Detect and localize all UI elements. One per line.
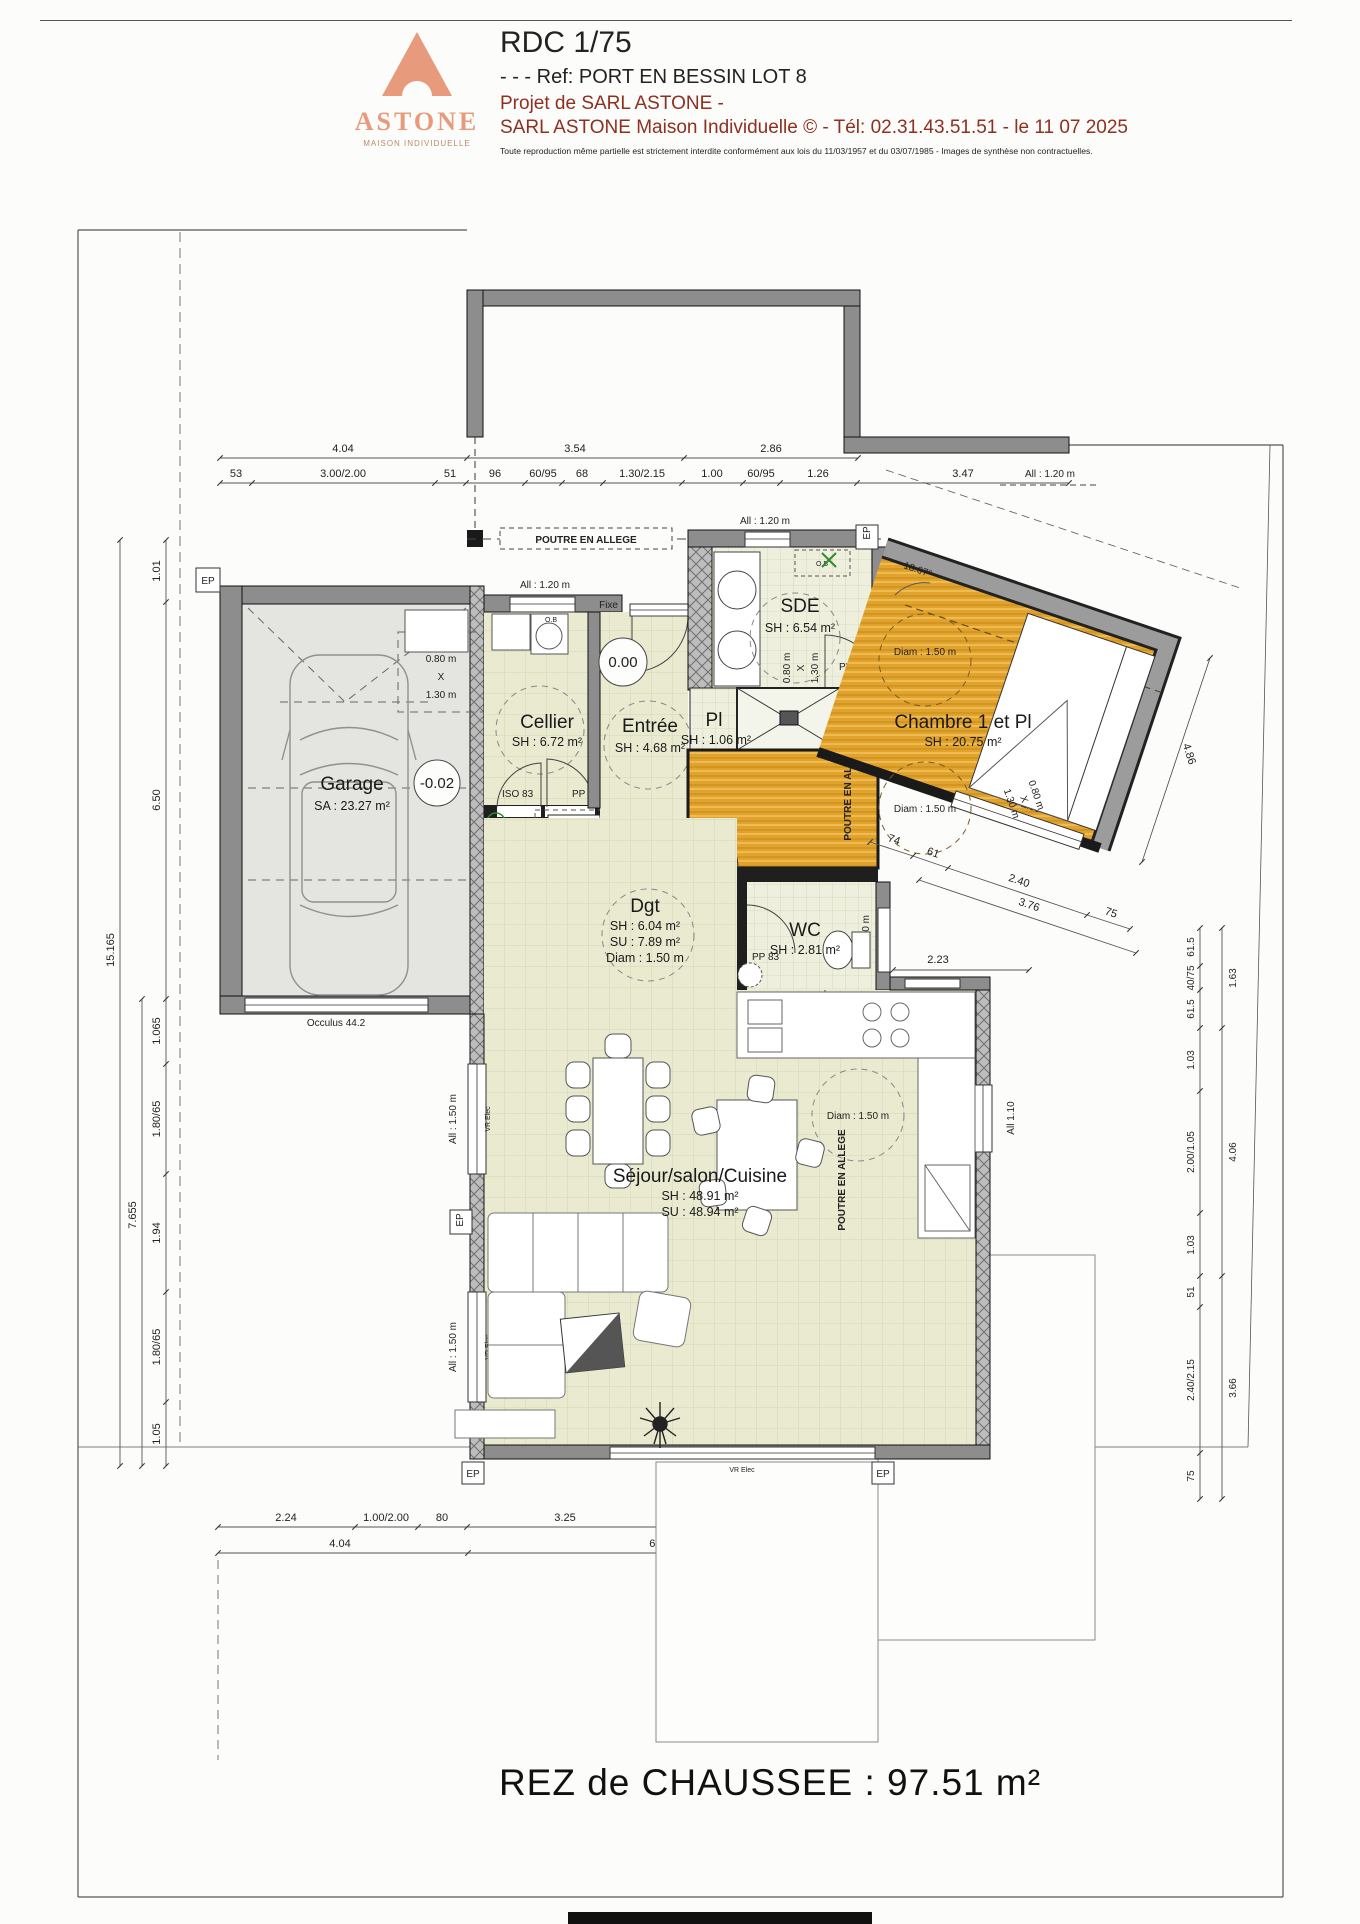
dim-label: 61 (925, 846, 940, 861)
neighbor-walls (467, 290, 1069, 547)
coffee-table (560, 1313, 624, 1373)
dim-label: 74 (886, 833, 901, 848)
room-area: SU : 48.94 m² (661, 1205, 738, 1219)
room-name: Dgt (630, 896, 660, 917)
dim-label: 3.66 (1228, 1378, 1239, 1398)
ep-downspout-label: EP (876, 1469, 890, 1480)
window-size-label: 0.80 m (782, 653, 793, 684)
dim-label: 4.06 (1228, 1142, 1239, 1162)
room-area: SA : 23.27 m² (314, 799, 390, 813)
beam-label: POUTRE EN ALLEGE (837, 1129, 848, 1231)
window-sill-label: All : 1.50 m (448, 1322, 459, 1372)
window-size-label: 0.80 m (426, 654, 457, 665)
dim-label: 75 (1186, 1470, 1197, 1482)
dim-label: 68 (576, 468, 588, 480)
dim-label: 4.86 (1180, 742, 1198, 766)
dim-label: 7.655 (127, 1201, 139, 1229)
room-area: SH : 6.04 m² (610, 919, 680, 933)
room-area: SU : 7.89 m² (610, 935, 680, 949)
dim-label: 3.47 (952, 468, 973, 480)
window-size-label: X (438, 672, 445, 683)
dim-label: 1.30/2.15 (619, 468, 665, 480)
armchair (632, 1290, 692, 1348)
dim-label: 1.00/2.00 (363, 1512, 409, 1524)
ep-downspout-label: EP (466, 1469, 480, 1480)
floor-plan-drawing: 4.04 3.54 2.86 53 3.00/2.00 51 96 60/95 … (0, 0, 1360, 1924)
dim-label: 6.50 (151, 789, 163, 810)
tv-console (455, 1410, 555, 1438)
ob-window-label: O.B (545, 617, 557, 624)
fixed-window-label: Fixe (599, 600, 618, 611)
dim-label: 2.40/2.15 (1186, 1359, 1197, 1401)
dim-label: 53 (230, 468, 242, 480)
ep-downspout-label: EP (201, 576, 215, 587)
dim-label: 4.04 (332, 443, 353, 455)
dim-label: 2.24 (275, 1512, 296, 1524)
dim-label: 1.03 (1186, 1050, 1197, 1070)
dim-label: 1.03 (1186, 1235, 1197, 1255)
room-area: SH : 1.06 m² (681, 733, 751, 747)
dim-label: 1.94 (151, 1222, 163, 1243)
room-area: SH : 4.68 m² (615, 741, 685, 755)
dim-label: 60/95 (529, 468, 557, 480)
dim-label: 4.04 (329, 1538, 350, 1550)
dim-label: 1.80/65 (151, 1329, 163, 1366)
window-sill-label: All 1.10 (1006, 1101, 1017, 1135)
turning-circle-label: Diam : 1.50 m (894, 647, 956, 658)
beam-label: POUTRE EN ALLEGE (535, 535, 637, 546)
window-sill-label: All : 1.50 m (448, 1094, 459, 1144)
dim-label: 40/75 (1186, 965, 1197, 990)
dim-label: 3.76 (1017, 896, 1041, 914)
window-sill-label: All : 1.20 m (740, 516, 790, 527)
room-name: Garage (320, 774, 383, 795)
dim-label: 15.165 (105, 933, 117, 967)
dim-label: 96 (489, 468, 501, 480)
scan-artifact (568, 1912, 872, 1924)
room-name: SDE (780, 596, 819, 617)
dim-label: 1.63 (1228, 968, 1239, 988)
plan-sheet: ASTONE MAISON INDIVIDUELLE RDC 1/75 - - … (0, 0, 1360, 1924)
dim-label: 2.40 (1007, 872, 1031, 890)
dimension-chain-right: 61.5 40/75 61.5 1.03 2.00/1.05 1.03 51 2… (1142, 658, 1239, 1499)
garage-door-label: Occulus 44.2 (307, 1018, 366, 1029)
room-wc: All : 1.40 m PP 83 WC SH : 2.81 m² 2.23 (737, 868, 1029, 990)
dim-label: 1.00 (701, 468, 722, 480)
dim-label: 3.00/2.00 (320, 468, 366, 480)
ep-downspout-label: EP (862, 526, 873, 540)
dim-label: 61.5 (1186, 999, 1197, 1019)
window-size-label: X (796, 664, 807, 671)
floor-total-area-title: REZ de CHAUSSEE : 97.51 m² (440, 1762, 1100, 1804)
room-name: Séjour/salon/Cuisine (613, 1166, 787, 1187)
room-area: SH : 48.91 m² (661, 1189, 738, 1203)
room-name: Entrée (622, 716, 678, 737)
turning-circle-label: Diam : 1.50 m (894, 804, 956, 815)
dim-label: 1.065 (151, 1017, 163, 1045)
room-dgt: Dgt SH : 6.04 m² SU : 7.89 m² Diam : 1.5… (484, 818, 737, 990)
shutter-label: VR Elec (485, 1106, 492, 1132)
dim-label: 51 (1186, 1286, 1197, 1298)
ep-downspout-label: EP (455, 1213, 466, 1227)
room-area: SH : 6.54 m² (765, 621, 835, 635)
window-sill-label: All : 1.20 m (520, 580, 570, 591)
room-pl-and-shower: Pl SH : 1.06 m² (681, 688, 840, 750)
room-entree: Fixe 0.00 Entrée SH : 4.68 m² (588, 600, 692, 818)
dim-label: 1.26 (807, 468, 828, 480)
window-size-label: 1.30 m (426, 690, 457, 701)
room-area: SH : 2.81 m² (770, 943, 840, 957)
dim-label: 3.54 (564, 443, 585, 455)
dim-label: 2.86 (760, 443, 781, 455)
room-area: SH : 6.72 m² (512, 735, 582, 749)
shutter-label: VR Elec (729, 1467, 755, 1474)
room-area: Diam : 1.50 m (606, 951, 684, 965)
dim-label: 2.00/1.05 (1186, 1131, 1197, 1173)
room-name: Pl (706, 710, 723, 731)
dim-label: 60/95 (747, 468, 775, 480)
room-sejour: All : 1.50 m VR Elec All : 1.50 m VR Ele… (448, 977, 1017, 1484)
dim-label: 1.01 (151, 560, 163, 581)
dim-label: 1.05 (151, 1423, 163, 1444)
dim-label: 51 (444, 468, 456, 480)
window-size-label: 1.30 m (810, 653, 821, 684)
room-name: WC (789, 920, 821, 941)
dimension-chain-left: 15.165 7.655 1.01 6.50 1.065 1.80/65 1.9… (105, 540, 166, 1466)
dim-label: 3.25 (554, 1512, 575, 1524)
dim-label: 1.80/65 (151, 1101, 163, 1138)
room-name: Cellier (520, 712, 575, 733)
dim-label: 61.5 (1186, 937, 1197, 957)
level-marker: 0.00 (608, 654, 637, 671)
room-area: SH : 20.75 m² (924, 735, 1001, 749)
dim-label: 75 (1103, 906, 1118, 921)
turning-circle-label: Diam : 1.50 m (827, 1111, 889, 1122)
level-marker: -0.02 (420, 775, 454, 792)
room-name: Chambre 1 et Pl (894, 712, 1031, 733)
door-label: ISO 83 (502, 789, 534, 800)
dim-label: 2.23 (927, 954, 948, 966)
dim-label: 80 (436, 1512, 448, 1524)
window-sill-label: All : 1.20 m (1025, 469, 1075, 480)
